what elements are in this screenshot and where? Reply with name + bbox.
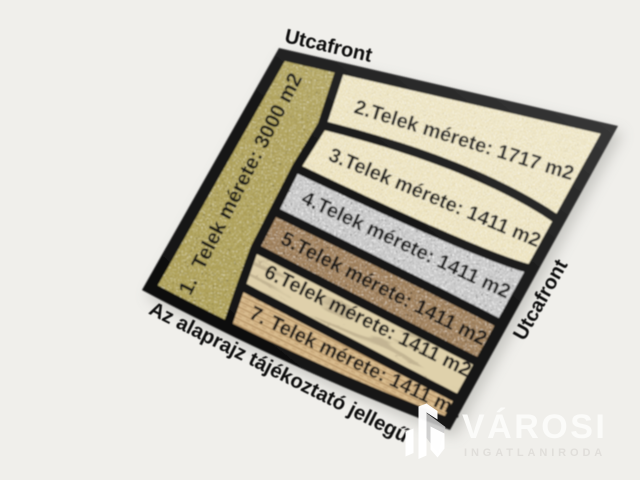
- svg-text:INGATLANIRODA: INGATLANIRODA: [464, 447, 606, 459]
- svg-text:VÁROSI: VÁROSI: [462, 408, 607, 446]
